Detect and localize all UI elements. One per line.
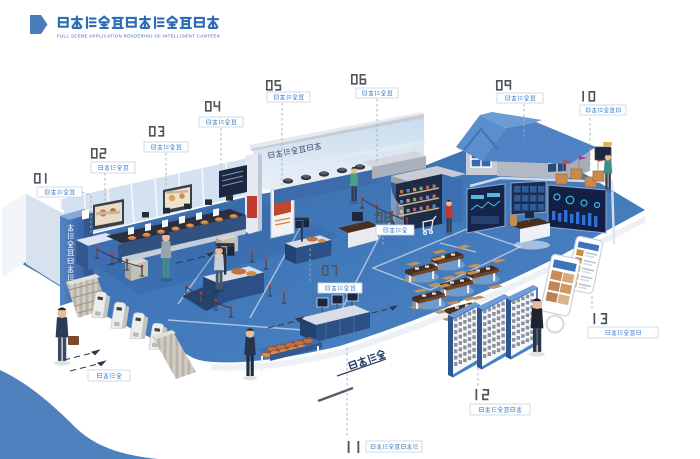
svg-text:FULL SCENE APPLICATION RENDERI: FULL SCENE APPLICATION RENDERING OF INTE… (57, 34, 220, 39)
